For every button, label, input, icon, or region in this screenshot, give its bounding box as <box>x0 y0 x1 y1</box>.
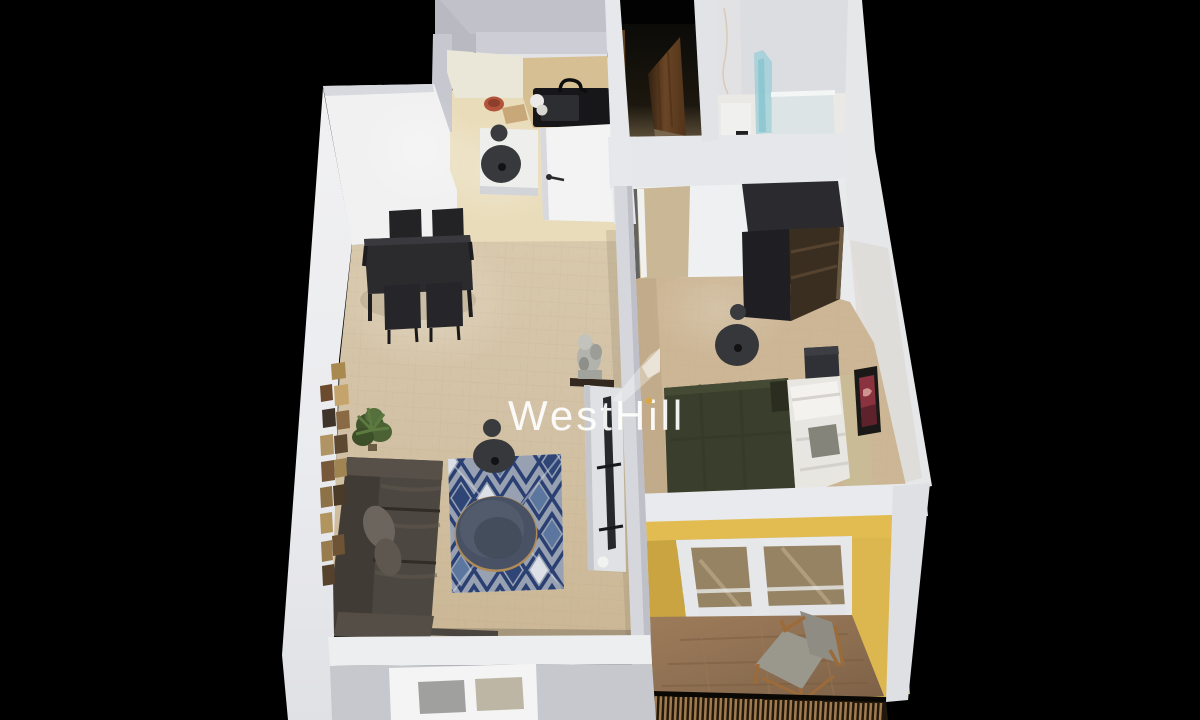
svg-text:WestHill: WestHill <box>508 392 685 439</box>
